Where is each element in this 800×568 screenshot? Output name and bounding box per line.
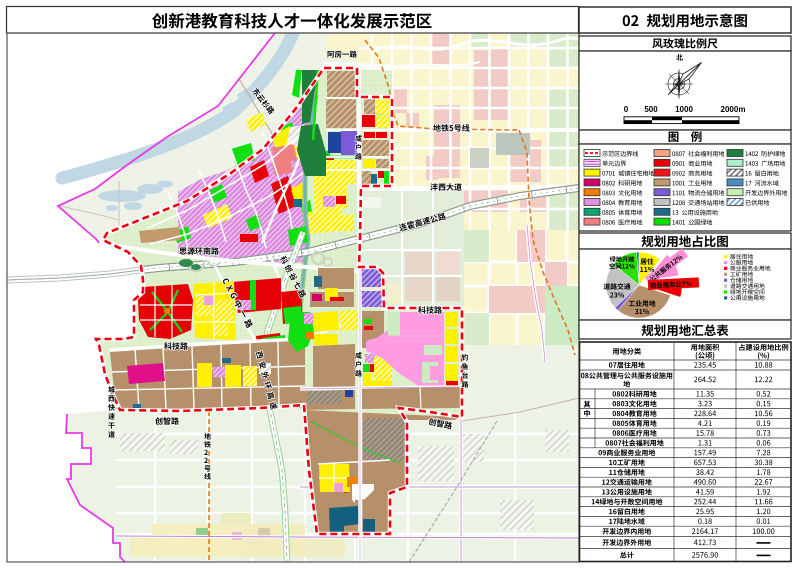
svg-text:500: 500 bbox=[644, 105, 658, 114]
svg-text:1000: 1000 bbox=[675, 105, 693, 114]
svg-text:0: 0 bbox=[624, 105, 629, 114]
svg-text:2000m: 2000m bbox=[721, 105, 746, 114]
